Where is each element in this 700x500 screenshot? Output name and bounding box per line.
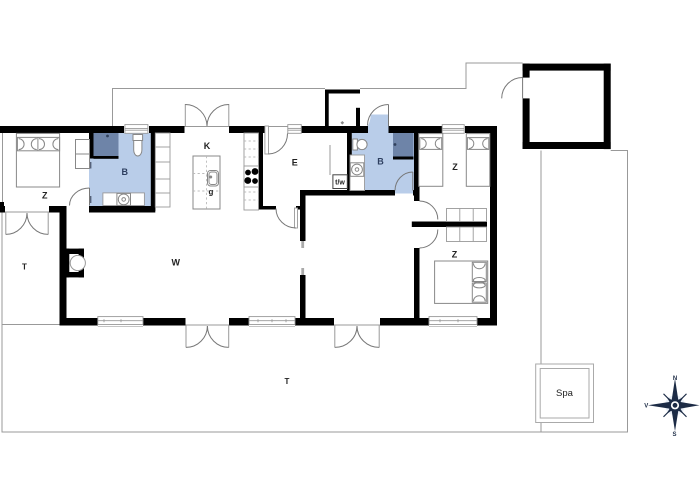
svg-text:g: g — [209, 188, 214, 197]
svg-text:N: N — [673, 376, 677, 382]
svg-text:Z: Z — [452, 249, 458, 259]
svg-text:S: S — [672, 432, 676, 438]
svg-text:K: K — [204, 141, 211, 151]
svg-text:E: E — [292, 158, 298, 168]
svg-text:Z: Z — [42, 191, 48, 201]
svg-text:V: V — [644, 403, 648, 409]
svg-text:W: W — [171, 257, 180, 267]
svg-text:Spa: Spa — [556, 388, 574, 399]
svg-text:Z: Z — [452, 162, 458, 172]
svg-text:B: B — [121, 167, 128, 177]
svg-text:T: T — [22, 263, 27, 272]
svg-text:B: B — [377, 157, 384, 167]
svg-text:t/w: t/w — [335, 179, 345, 186]
svg-text:T: T — [285, 377, 290, 386]
